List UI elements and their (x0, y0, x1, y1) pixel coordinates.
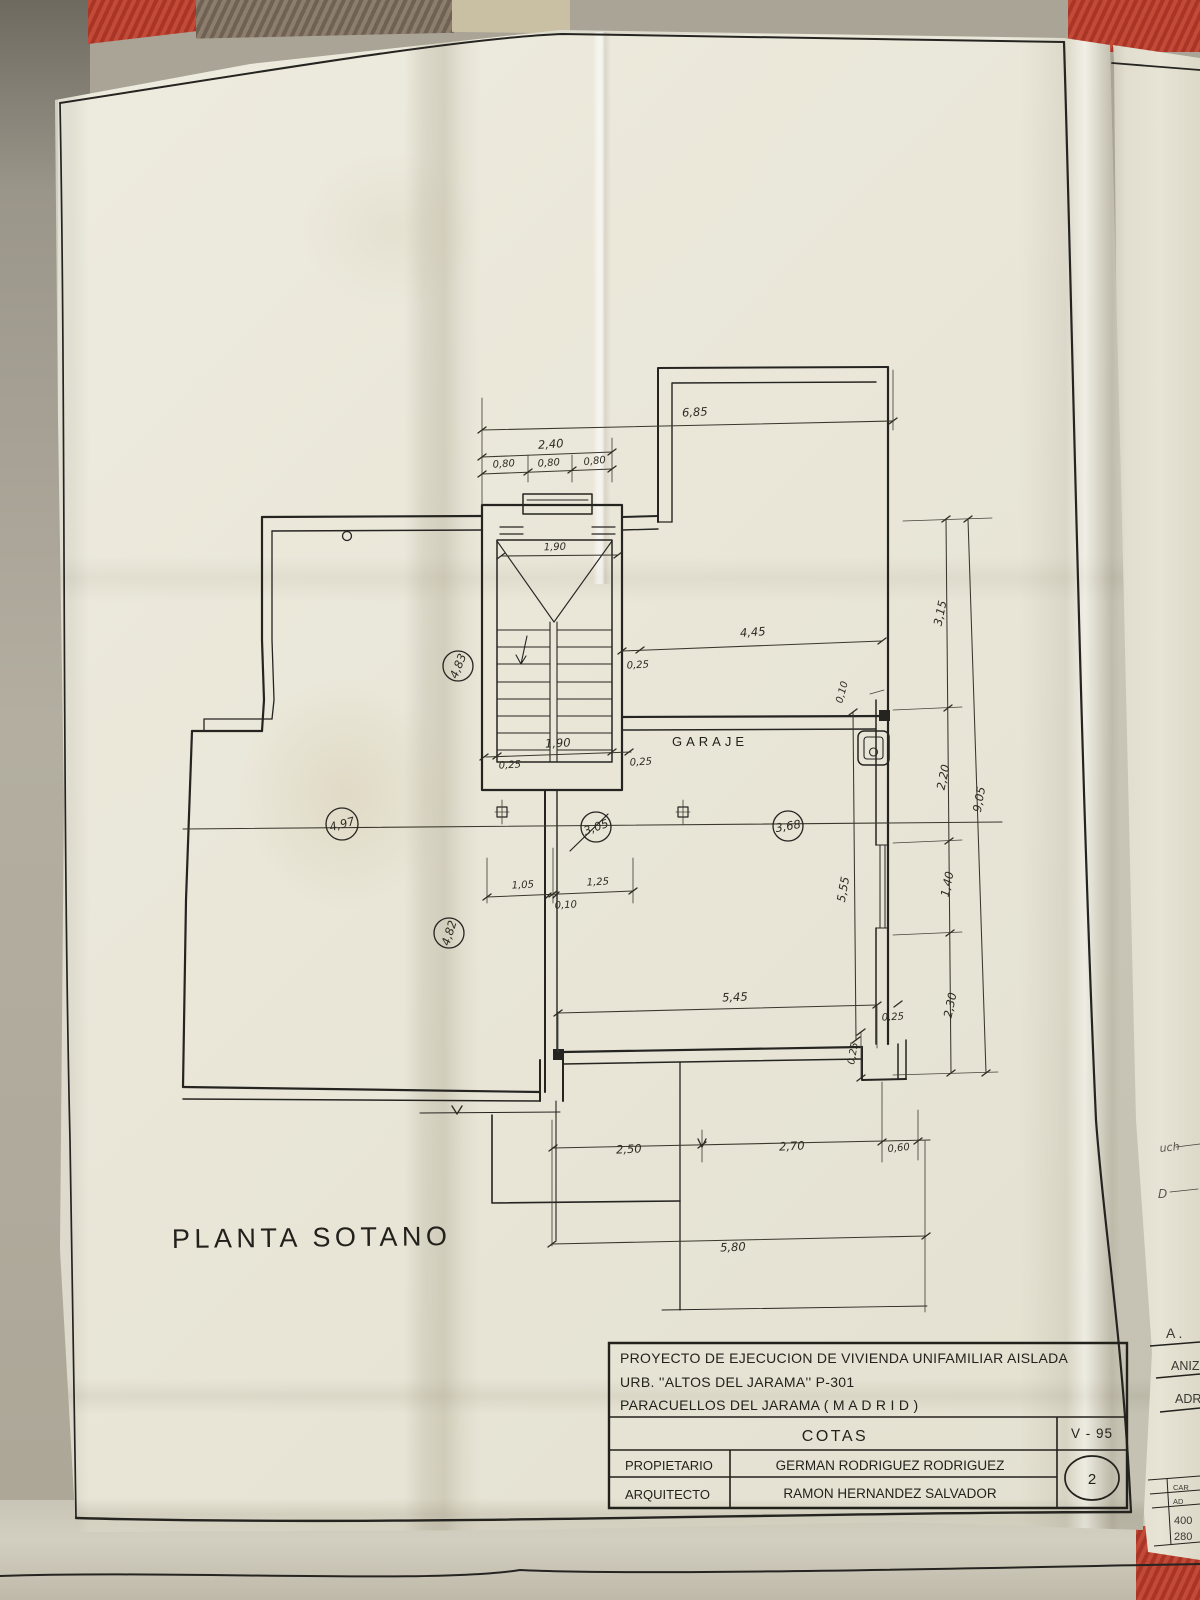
wall-room-bottom-outer (183, 1087, 540, 1092)
dim-porch-total: 2,40 (537, 436, 564, 452)
fragment-a: A . (1166, 1325, 1182, 1341)
dim-stair-top: 1,90 (544, 542, 567, 554)
column-marker-2 (676, 800, 690, 824)
bay-outline (492, 1115, 680, 1203)
column-marker-1 (495, 800, 509, 824)
dimline-685 (482, 421, 893, 430)
garage-corner-detail (898, 1040, 906, 1079)
project-line3: PARACUELLOS DEL JARAMA ( M A D R I D ) (620, 1397, 918, 1413)
project-line1: PROYECTO DE EJECUCION DE VIVIENDA UNIFAM… (620, 1350, 1069, 1366)
garage-top-inner (622, 729, 876, 730)
owner-label: PROPIETARIO (625, 1458, 713, 1473)
stair-inner (497, 540, 612, 762)
fragment-uch: uch (1159, 1140, 1180, 1155)
dimline-hall (487, 891, 633, 897)
garage-bottom-outer (563, 1047, 862, 1052)
garage-top-outer (622, 716, 888, 717)
dim-right-d: 2,30 (941, 991, 960, 1019)
connector-inner (622, 529, 658, 530)
dim-wall-bottom-v: 0,25 (846, 1042, 861, 1066)
lower-line-bottom (662, 1306, 927, 1310)
second-sheet-border (1112, 63, 1200, 70)
drain-circle (343, 532, 352, 541)
dimension-labels: 6,85 2,40 0,80 0,80 0,80 1,90 1,90 0,25 … (492, 404, 988, 1254)
wall-topleft-outer (262, 516, 482, 517)
dim-hall-a: 1,05 (511, 879, 534, 891)
owner-name: GERMAN RODRIGUEZ RODRIGUEZ (776, 1458, 1005, 1473)
column-cross (495, 800, 509, 824)
architect-name: RAMON HERNANDEZ SALVADOR (783, 1486, 997, 1501)
dim-garage-depth: 5,55 (834, 875, 852, 903)
dim-hall-offset: 0,10 (554, 899, 577, 911)
fragment-400: 400 (1174, 1515, 1192, 1527)
dim-offset-top: 0,10 (834, 680, 850, 704)
courtyard-inner (672, 382, 876, 522)
boiler-fixture (858, 731, 889, 765)
dimline-545 (558, 1005, 877, 1013)
plan-code: V - 95 (1071, 1426, 1113, 1441)
garage-bottom-inner (563, 1059, 862, 1064)
stair-treads (497, 630, 612, 750)
fragment-ad: AD (1173, 1497, 1184, 1506)
dim-wall-right: 0,25 (629, 756, 652, 768)
dim-right-b: 2,20 (934, 763, 953, 791)
dim-low-b: 2,70 (779, 1138, 805, 1153)
garage-window (876, 845, 888, 928)
stair-flange (500, 527, 615, 534)
wall-topleft-inner (272, 530, 482, 531)
dim-low-a: 2,50 (616, 1141, 642, 1156)
fragment-adr: ADR (1175, 1392, 1200, 1406)
column-solid-right (879, 710, 890, 721)
photo-of-blueprint: 4,83 4,97 4,82 3,05 3,68 6,85 2,40 0,80 … (0, 0, 1200, 1600)
dim-wall-left: 0,25 (498, 759, 521, 771)
wall-room-left (183, 731, 192, 1087)
sheet-border (0, 34, 1200, 1576)
dim-porch-a: 0,80 (492, 458, 515, 471)
plan-walls (183, 367, 927, 1310)
circled-value-482: 4,82 (438, 919, 459, 948)
dim-porch-b: 0,80 (537, 457, 560, 470)
dimline-low-chain (553, 1140, 930, 1148)
circled-value-497: 4,97 (328, 814, 357, 834)
column-cross (676, 800, 690, 824)
paper-edge-line (0, 1564, 1200, 1576)
dim-hall-b: 1,25 (586, 876, 609, 888)
dim-garage-bottom: 5,45 (722, 990, 748, 1005)
sheet-number: 2 (1088, 1471, 1096, 1488)
dim-low-c: 0,60 (887, 1142, 910, 1155)
fragment-d: D (1158, 1187, 1167, 1201)
border-right (1064, 42, 1131, 1512)
dim-right-c: 1,40 (938, 870, 957, 898)
wall-left-upper-outer (262, 517, 264, 731)
title-block: PROYECTO DE EJECUCION DE VIVIENDA UNIFAM… (609, 1343, 1127, 1508)
side-sheet-marks: A . ANIZ ADR uch D CAR AD 400 280 (1148, 1140, 1200, 1546)
title-block-frame (609, 1343, 1127, 1508)
border-bottom (76, 1512, 1131, 1521)
drawing-ink: 4,83 4,97 4,82 3,05 3,68 6,85 2,40 0,80 … (0, 0, 1200, 1600)
architect-label: ARQUITECTO (625, 1487, 710, 1502)
column-solid-left (553, 1049, 564, 1060)
fragment-aniz: ANIZ (1171, 1359, 1200, 1373)
room-label: GARAJE (672, 734, 748, 749)
plan-title: PLANTA SOTANO (172, 1221, 452, 1254)
border-top (60, 34, 1064, 103)
circled-value-368: 3,68 (774, 817, 802, 835)
dim-stair-bottom: 1,90 (545, 735, 571, 750)
dim-low-total: 5,80 (720, 1240, 746, 1255)
dim-wall-top: 0,25 (626, 659, 649, 671)
dim-right-total: 9,05 (970, 785, 988, 813)
fragment-280: 280 (1174, 1531, 1192, 1543)
dim-wall-bottom-h: 0,25 (881, 1011, 904, 1023)
dim-porch-c: 0,80 (583, 455, 606, 468)
drawing-title: COTAS (802, 1428, 868, 1445)
extension-lines (482, 370, 998, 1312)
dim-overall-top: 6,85 (682, 404, 708, 419)
fragment-car: CAR (1173, 1483, 1189, 1492)
stair-direction-arrow (516, 636, 527, 664)
border-left (60, 103, 76, 1518)
wall-room-bottom-inner (183, 1099, 540, 1101)
dimline-190-top (501, 555, 618, 556)
dimline-555 (853, 712, 856, 1040)
wall-left-upper-inner (272, 531, 274, 719)
courtyard-outer (658, 367, 888, 522)
circled-value-305: 3,05 (582, 816, 611, 838)
stair-break-lines (497, 541, 612, 622)
dimline-445 (622, 641, 882, 651)
dim-garage-width: 4,45 (739, 624, 766, 640)
project-line2: URB. ''ALTOS DEL JARAMA'' P-301 (620, 1374, 854, 1390)
terrace-edge (420, 1112, 560, 1113)
connector-outer (622, 516, 658, 517)
circled-value-483: 4,83 (447, 652, 470, 681)
